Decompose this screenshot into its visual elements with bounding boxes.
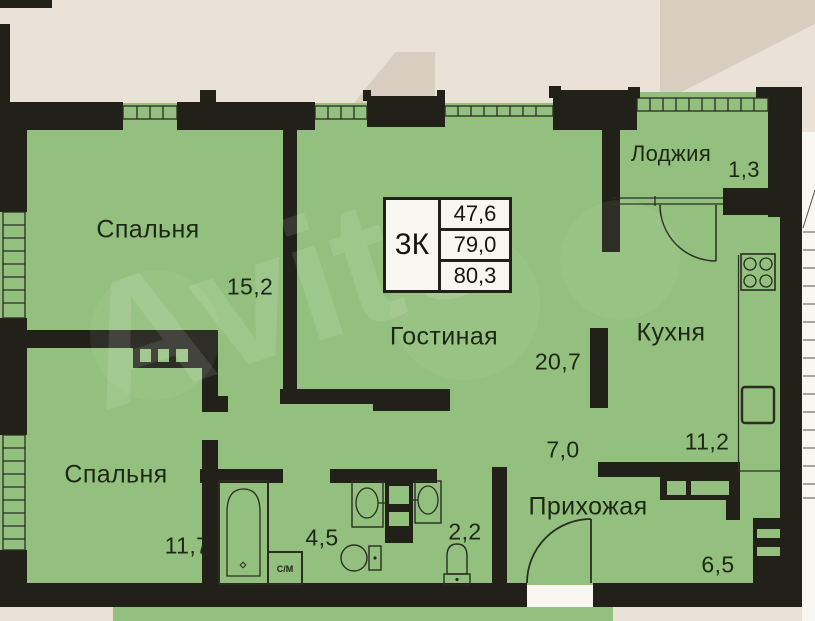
bathtub-icon [219,481,268,584]
sink-icon-wc [411,481,441,523]
bedroom-bottom-label: Спальня [64,461,167,490]
loggia-label: Лоджия [631,141,711,167]
wardrobe-hallway [660,477,740,500]
kitchen-label: Кухня [637,319,706,348]
corridor-area: 7,0 [546,437,579,464]
loggia-door-arc [660,205,716,261]
loggia-area: 1,3 [728,157,760,183]
entrance-door-arc [527,519,591,583]
kitchen-sink-icon [742,387,774,423]
kitchen-counter [739,255,781,471]
toilet-icon-bathroom [341,545,381,571]
stove-icon [741,254,775,290]
sink-icon-bathroom [352,481,387,527]
stairs [803,190,815,498]
hallway-label: Прихожая [528,493,647,522]
wardrobe-bedroom [133,345,203,368]
area-total: 79,0 [441,228,509,259]
living-room-area: 20,7 [535,349,581,376]
living-room-label: Гостиная [390,323,498,352]
bedroom-top-area: 15,2 [227,274,273,301]
hallway-area: 6,5 [701,552,734,579]
entrance-threshold [527,585,593,607]
unit-type: 3К [386,200,438,290]
wc-area: 2,2 [448,519,481,546]
floorplan-drawing [0,0,815,621]
area-values: 47,6 79,0 80,3 [438,200,509,290]
toilet-icon-wc [444,544,470,585]
washing-machine-label: С/М [277,564,294,574]
vent-shaft-bathroom [385,477,413,543]
bathroom-area: 4,5 [305,525,338,552]
area-living: 47,6 [441,200,509,228]
bedroom-bottom-area: 11,7 [165,533,210,560]
kitchen-area: 11,2 [685,429,730,456]
bedroom-top-label: Спальня [96,216,199,245]
info-table: 3К 47,6 79,0 80,3 [383,197,512,293]
floorplan-canvas: Avito Спальня 15,2 Спальня 11,7 Гостиная… [0,0,815,621]
vent-shaft-hallway [753,518,780,583]
area-total-with-loggia: 80,3 [441,259,509,290]
